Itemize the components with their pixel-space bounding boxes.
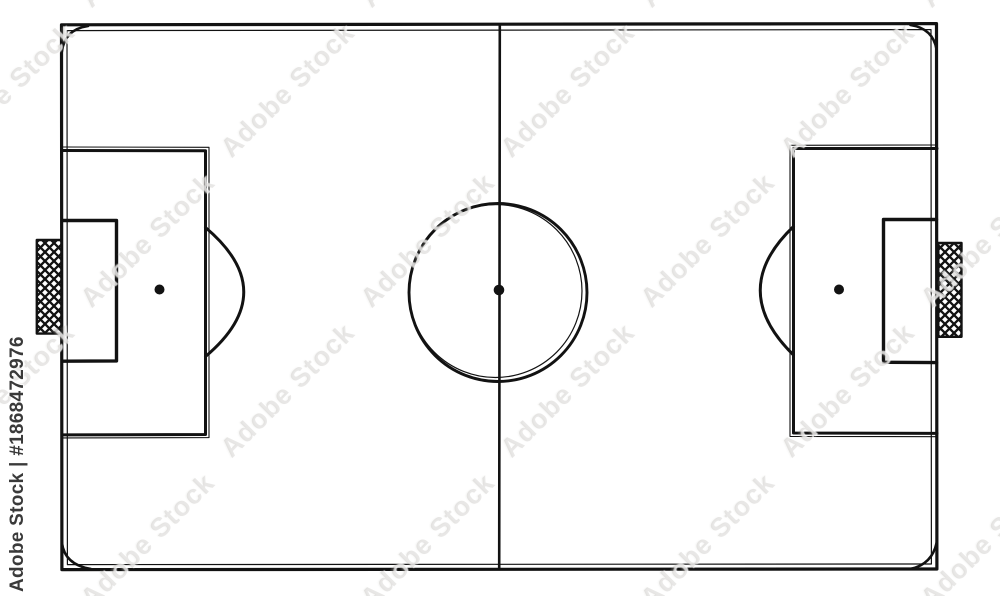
right-goal-net [938,243,961,337]
left-penalty-area [62,151,206,435]
corner-arc-bottom-right [911,543,937,569]
right-penalty-area-sketch-echo [790,145,937,437]
soccer-field-drawing [0,0,1000,596]
left-goal-net [37,240,62,334]
corner-arc-top-left [62,26,88,52]
right-penalty-spot [834,285,844,295]
left-goal-area [63,221,117,362]
left-penalty-arc [206,228,244,357]
right-goal-area [884,220,937,363]
center-spot [494,285,505,296]
left-penalty-area-sketch-echo [62,147,209,438]
corner-arc-top-right [911,25,937,50]
stock-image-canvas: Adobe StockAdobe StockAdobe StockAdobe S… [0,0,1000,596]
halfway-line [499,26,500,568]
right-penalty-area [794,149,938,434]
left-penalty-spot [155,285,165,295]
right-penalty-arc [760,227,793,356]
